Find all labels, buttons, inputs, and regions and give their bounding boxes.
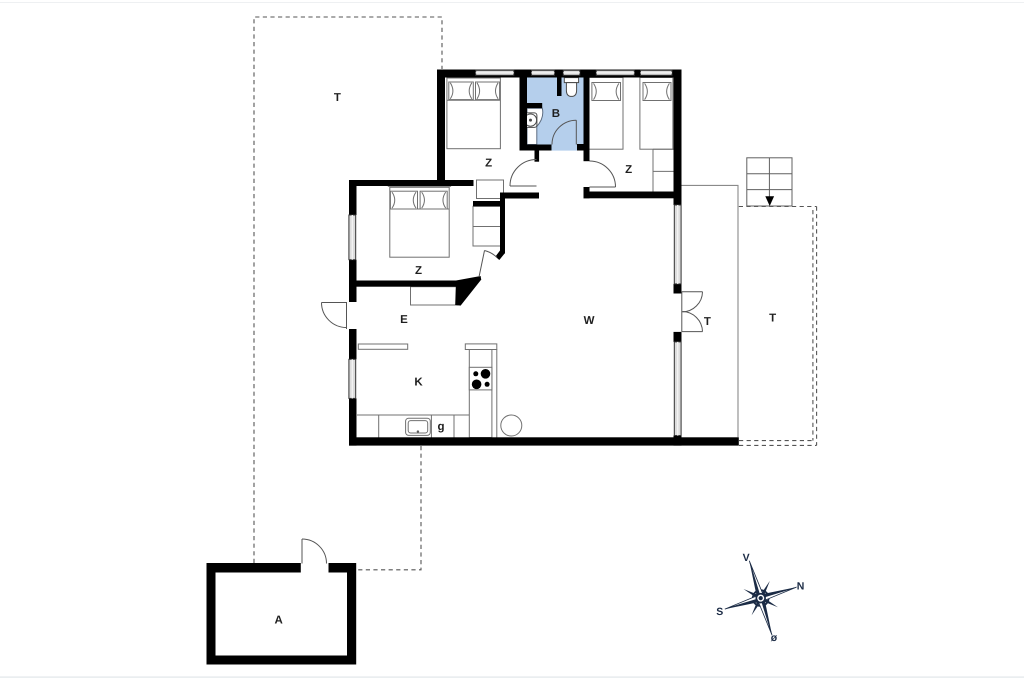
svg-text:E: E (400, 314, 408, 326)
svg-text:Z: Z (415, 265, 422, 277)
svg-text:W: W (584, 315, 595, 327)
svg-text:A: A (275, 615, 283, 627)
svg-text:K: K (414, 377, 423, 389)
svg-text:g: g (437, 421, 444, 433)
svg-text:ø: ø (771, 632, 778, 644)
svg-text:Z: Z (625, 164, 632, 176)
svg-text:B: B (552, 108, 560, 120)
svg-text:Z: Z (485, 158, 492, 170)
svg-text:T: T (334, 92, 341, 104)
svg-text:T: T (769, 312, 776, 324)
svg-text:S: S (716, 606, 723, 618)
svg-text:T: T (704, 316, 711, 328)
svg-text:N: N (797, 581, 805, 593)
svg-text:V: V (743, 552, 750, 564)
